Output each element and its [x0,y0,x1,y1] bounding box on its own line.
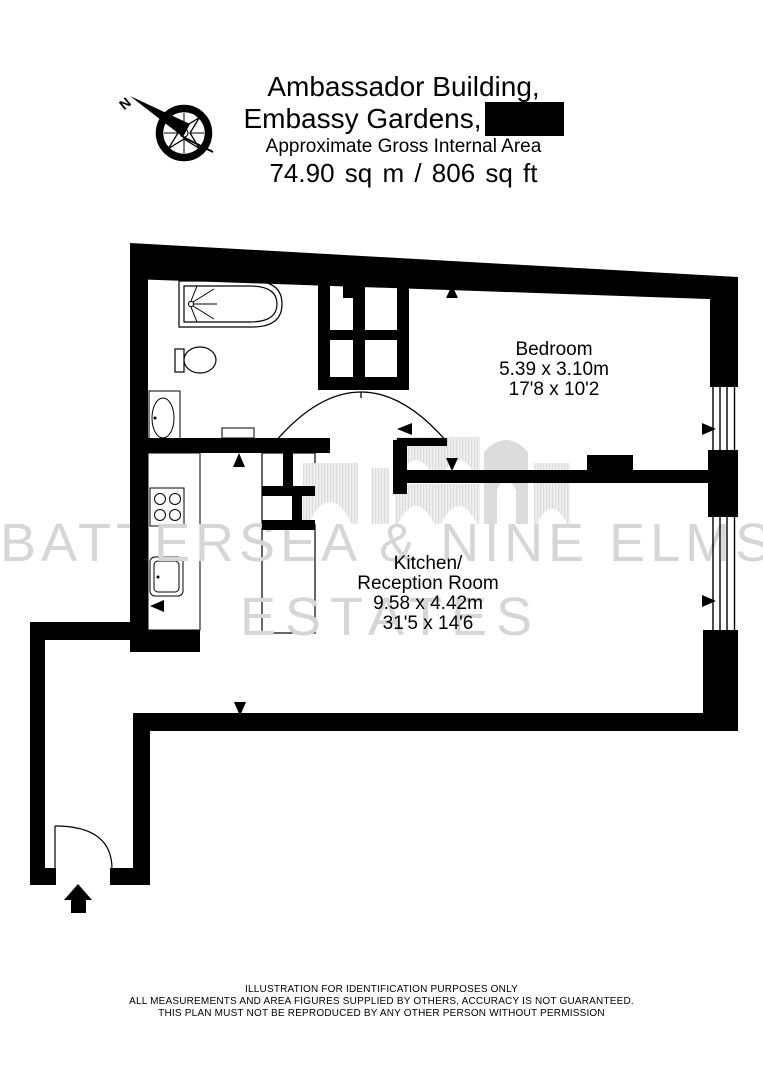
wall-hall-right [133,713,150,870]
kitchen-size-imperial: 31'5 x 14'6 [328,614,528,634]
entrance-arrow-icon [64,884,92,913]
double-door-arc [275,392,447,442]
kitchen-name-line2: Reception Room [328,574,528,594]
bedroom-name: Bedroom [454,340,654,360]
wall-kitchen-block [133,630,200,652]
kitchen-reception-label: Kitchen/ Reception Room 9.58 x 4.42m 31'… [328,554,528,634]
wall-bottom [133,713,720,731]
wall-divider-block [587,455,633,470]
disclaimer-line1: ILLUSTRATION FOR IDENTIFICATION PURPOSES… [0,984,763,996]
area-value: 74.90 sq m / 806 sq ft [22,158,763,188]
arrow-right-bedroom-window [702,423,716,435]
disclaimer-line3: THIS PLAN MUST NOT BE REPRODUCED BY ANY … [0,1008,763,1020]
entrance-door [55,826,112,869]
window-bedroom [713,387,735,450]
wall-entry-stub-left [30,868,56,885]
wall-hall-left [30,622,45,885]
wall-right-pier-top [710,277,738,387]
plan-header: Ambassador Building, Embassy Gardens, Ap… [22,72,763,188]
kitchen-size-metric: 9.58 x 4.42m [328,594,528,614]
bedroom-size-metric: 5.39 x 3.10m [454,360,654,380]
bedroom-label: Bedroom 5.39 x 3.10m 17'8 x 10'2 [454,340,654,400]
building-title: Ambassador Building, [22,72,763,102]
wall-top [130,243,738,300]
wall-hall-top [30,622,132,640]
entrance-door-arc [55,826,112,869]
arrow-up-kitchen [233,453,245,467]
wall-bedroom-divider [395,470,712,483]
wall-bedroom-left [393,440,407,494]
wall-closet-h [318,330,409,340]
wall-entry-stub-right [110,868,150,885]
area-caption: Approximate Gross Internal Area [22,136,763,158]
floorplan-page: BATTERSEA & NINE ELMS ESTATES [0,0,763,1080]
wall-closet-bottom [318,377,409,390]
arrow-left-sink [150,600,164,612]
development-title: Embassy Gardens, [22,102,763,136]
wall-left [130,262,148,652]
window-reception [713,517,735,630]
arrow-right-reception-window [702,595,716,607]
wall-closet-right [397,283,409,388]
redaction-box [485,102,564,136]
wall-right-pier-mid [708,450,738,517]
kitchen-name-line1: Kitchen/ [328,554,528,574]
wall-hall-stub [397,438,447,446]
bedroom-size-imperial: 17'8 x 10'2 [454,380,654,400]
disclaimer: ILLUSTRATION FOR IDENTIFICATION PURPOSES… [0,984,763,1020]
arrow-left-hall [397,423,412,435]
wall-bathroom-bottom [130,438,330,453]
disclaimer-line2: ALL MEASUREMENTS AND AREA FIGURES SUPPLI… [0,996,763,1008]
